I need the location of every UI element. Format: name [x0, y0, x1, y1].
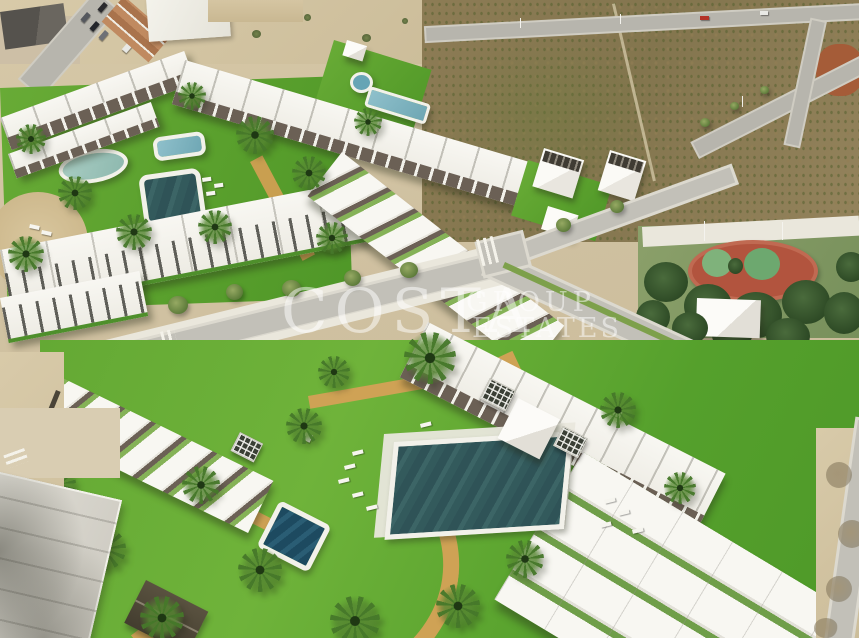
palm-tree — [664, 472, 696, 504]
bush — [304, 14, 311, 21]
palm-tree — [140, 596, 184, 638]
palm-tree — [238, 548, 282, 592]
palm-tree — [116, 214, 152, 250]
bush — [252, 30, 261, 38]
street-light — [742, 96, 743, 107]
bare-tree — [814, 618, 838, 638]
beige-buildings — [208, 0, 303, 22]
street-tree — [700, 118, 710, 127]
park-trees — [824, 292, 859, 334]
palm-tree — [236, 116, 274, 154]
palm-tree — [16, 124, 46, 154]
palm-tree — [316, 222, 348, 254]
palm-tree — [8, 236, 44, 272]
street-light — [520, 18, 521, 28]
bare-tree — [826, 576, 852, 602]
playground-tree — [728, 258, 743, 274]
park-light — [782, 222, 783, 240]
street-tree — [226, 284, 243, 300]
palm-tree — [404, 332, 456, 384]
palm-tree — [436, 584, 480, 628]
palm-tree — [182, 466, 220, 504]
palm-tree — [198, 210, 232, 244]
bare-tree — [826, 462, 852, 488]
palm-tree — [506, 540, 544, 578]
sidewalk-area — [0, 408, 120, 478]
palm-tree — [178, 82, 206, 110]
red-car — [700, 16, 709, 20]
bush — [402, 18, 408, 24]
street-tree — [760, 86, 769, 94]
playground-circle-right — [744, 248, 780, 280]
park-trees — [836, 252, 859, 282]
aerial-render-photo: COSTA GROUP ESTATES — [0, 0, 859, 638]
park-trees — [644, 262, 688, 302]
palm-tree — [318, 356, 350, 388]
street-tree — [556, 218, 571, 232]
bush — [362, 34, 371, 42]
palm-tree — [354, 108, 382, 136]
street-tree — [282, 280, 301, 297]
street-tree — [610, 200, 624, 213]
white-car — [760, 11, 768, 15]
street-tree — [730, 102, 739, 110]
street-tree — [400, 262, 418, 278]
palm-tree — [600, 392, 636, 428]
palm-tree — [292, 156, 326, 190]
street-light — [620, 14, 621, 24]
park-light — [704, 221, 705, 241]
palm-tree — [58, 176, 92, 210]
palm-tree — [286, 408, 322, 444]
street-tree — [168, 296, 188, 314]
bare-tree — [838, 520, 859, 548]
palm-tree — [330, 596, 380, 638]
street-tree — [344, 270, 361, 286]
